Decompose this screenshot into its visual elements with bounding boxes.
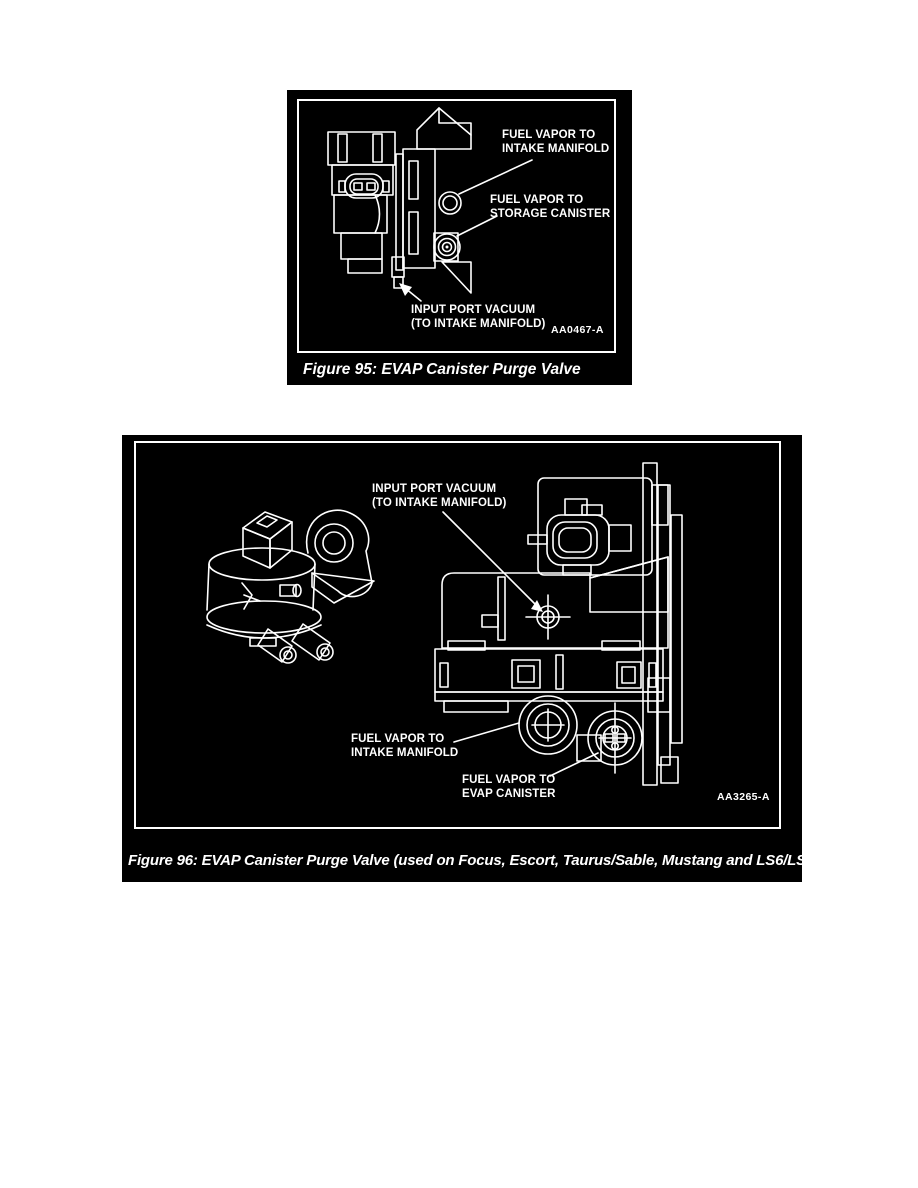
figure-95-caption: Figure 95: EVAP Canister Purge Valve xyxy=(303,361,581,379)
diagram-code-aa3265: AA3265-A xyxy=(717,791,770,803)
label-fuel-vapor-storage-canister: FUEL VAPOR TO STORAGE CANISTER xyxy=(490,194,610,221)
manual-page: FUEL VAPOR TO INTAKE MANIFOLD FUEL VAPOR… xyxy=(0,0,918,1188)
label-fuel-vapor-intake-manifold: FUEL VAPOR TO INTAKE MANIFOLD xyxy=(351,733,458,760)
diagram-code-aa0467: AA0467-A xyxy=(551,324,604,336)
label-input-port-vacuum: INPUT PORT VACUUM (TO INTAKE MANIFOLD) xyxy=(372,483,506,510)
label-input-port-vacuum: INPUT PORT VACUUM (TO INTAKE MANIFOLD) xyxy=(411,304,545,331)
figure-96-caption: Figure 96: EVAP Canister Purge Valve (us… xyxy=(128,852,819,869)
purge-valve-96-side-view-art xyxy=(435,463,682,785)
purge-valve-96-perspective-art xyxy=(207,510,374,663)
figure-95-panel: FUEL VAPOR TO INTAKE MANIFOLD FUEL VAPOR… xyxy=(287,90,632,385)
label-fuel-vapor-intake-manifold: FUEL VAPOR TO INTAKE MANIFOLD xyxy=(502,129,609,156)
label-fuel-vapor-evap-canister: FUEL VAPOR TO EVAP CANISTER xyxy=(462,774,556,801)
figure-96-panel: INPUT PORT VACUUM (TO INTAKE MANIFOLD) F… xyxy=(122,435,802,882)
